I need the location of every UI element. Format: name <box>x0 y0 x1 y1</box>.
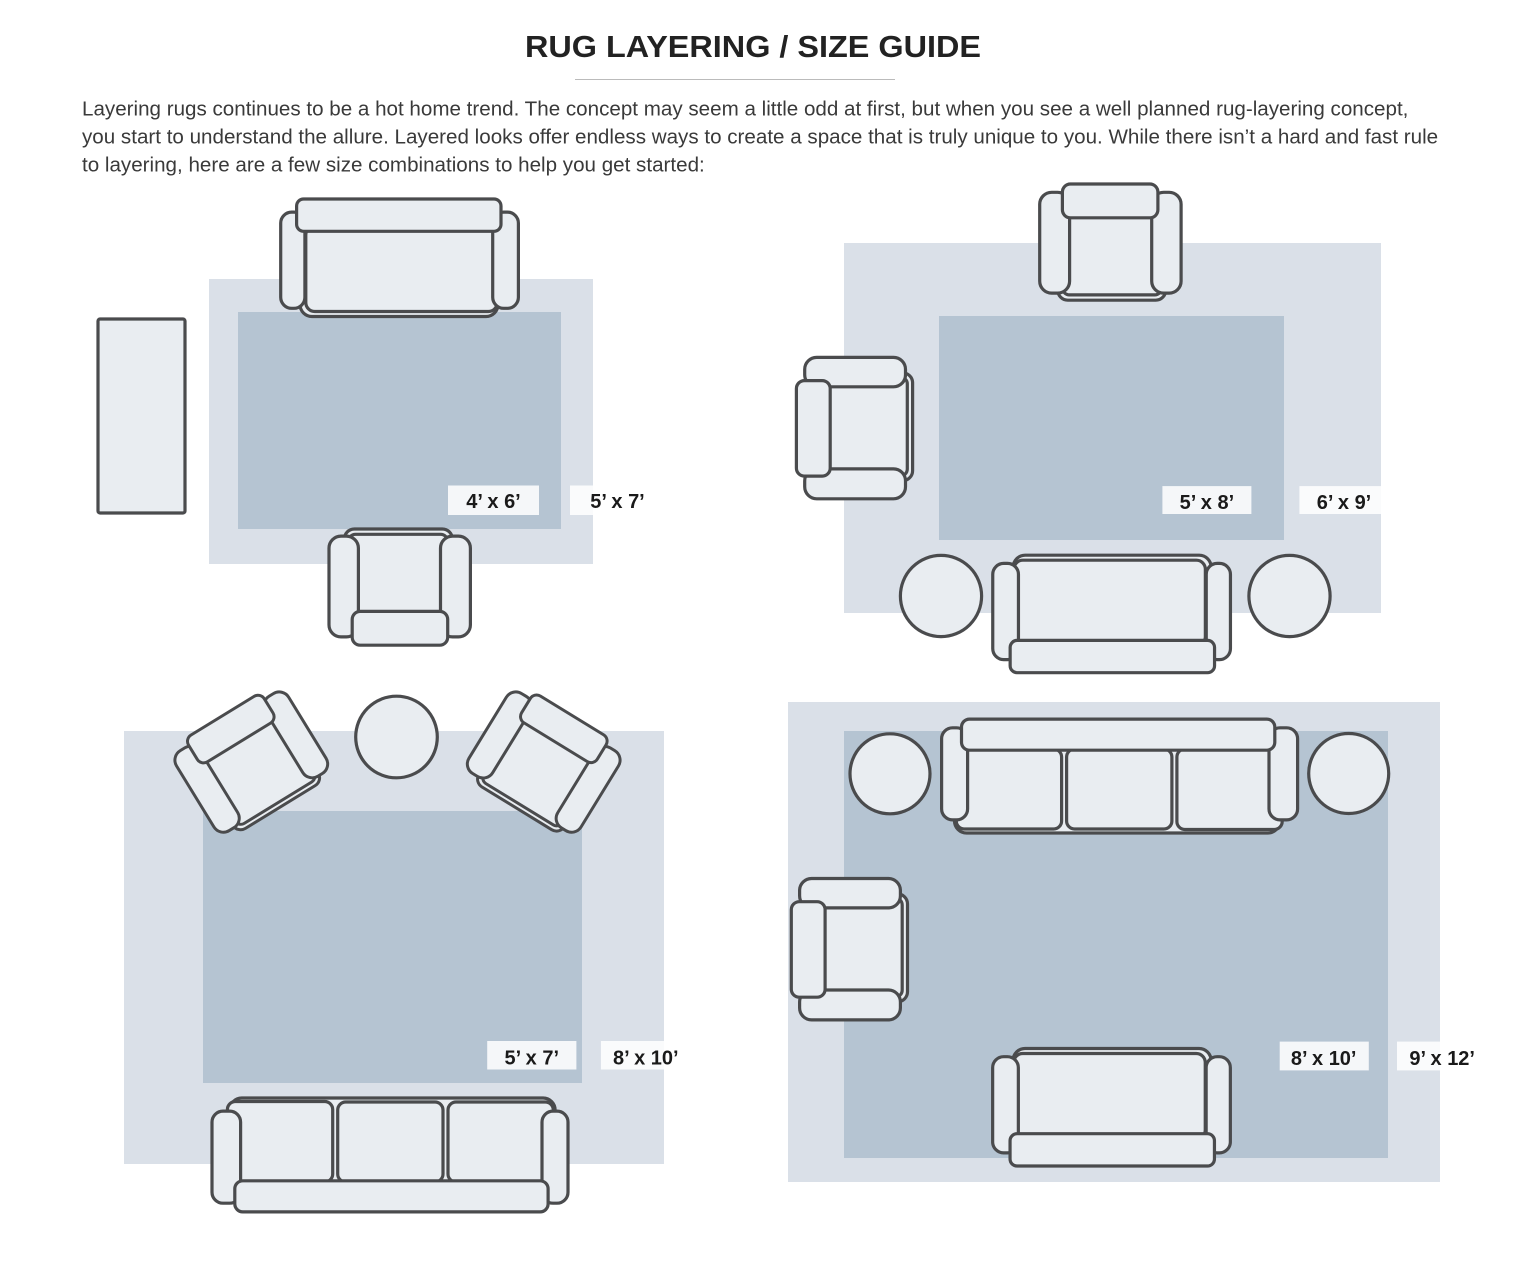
svg-text:8’ x 10’: 8’ x 10’ <box>613 1047 679 1069</box>
svg-text:8’ x 10’: 8’ x 10’ <box>1291 1048 1357 1070</box>
svg-text:you start to understand the al: you start to understand the allure. Laye… <box>82 126 1438 149</box>
svg-text:RUG LAYERING / SIZE GUIDE: RUG LAYERING / SIZE GUIDE <box>525 30 981 64</box>
svg-text:4’ x 6’: 4’ x 6’ <box>466 491 521 513</box>
svg-text:5’ x 7’: 5’ x 7’ <box>505 1047 560 1069</box>
svg-text:9’ x 12’: 9’ x 12’ <box>1409 1048 1475 1070</box>
svg-text:5’ x 7’: 5’ x 7’ <box>590 491 645 513</box>
svg-text:Layering rugs continues to be: Layering rugs continues to be a hot home… <box>82 98 1408 121</box>
svg-text:6’ x 9’: 6’ x 9’ <box>1317 492 1372 514</box>
svg-text:5’ x 8’: 5’ x 8’ <box>1180 492 1235 514</box>
svg-text:to layering, here are a few si: to layering, here are a few size combina… <box>82 154 705 177</box>
